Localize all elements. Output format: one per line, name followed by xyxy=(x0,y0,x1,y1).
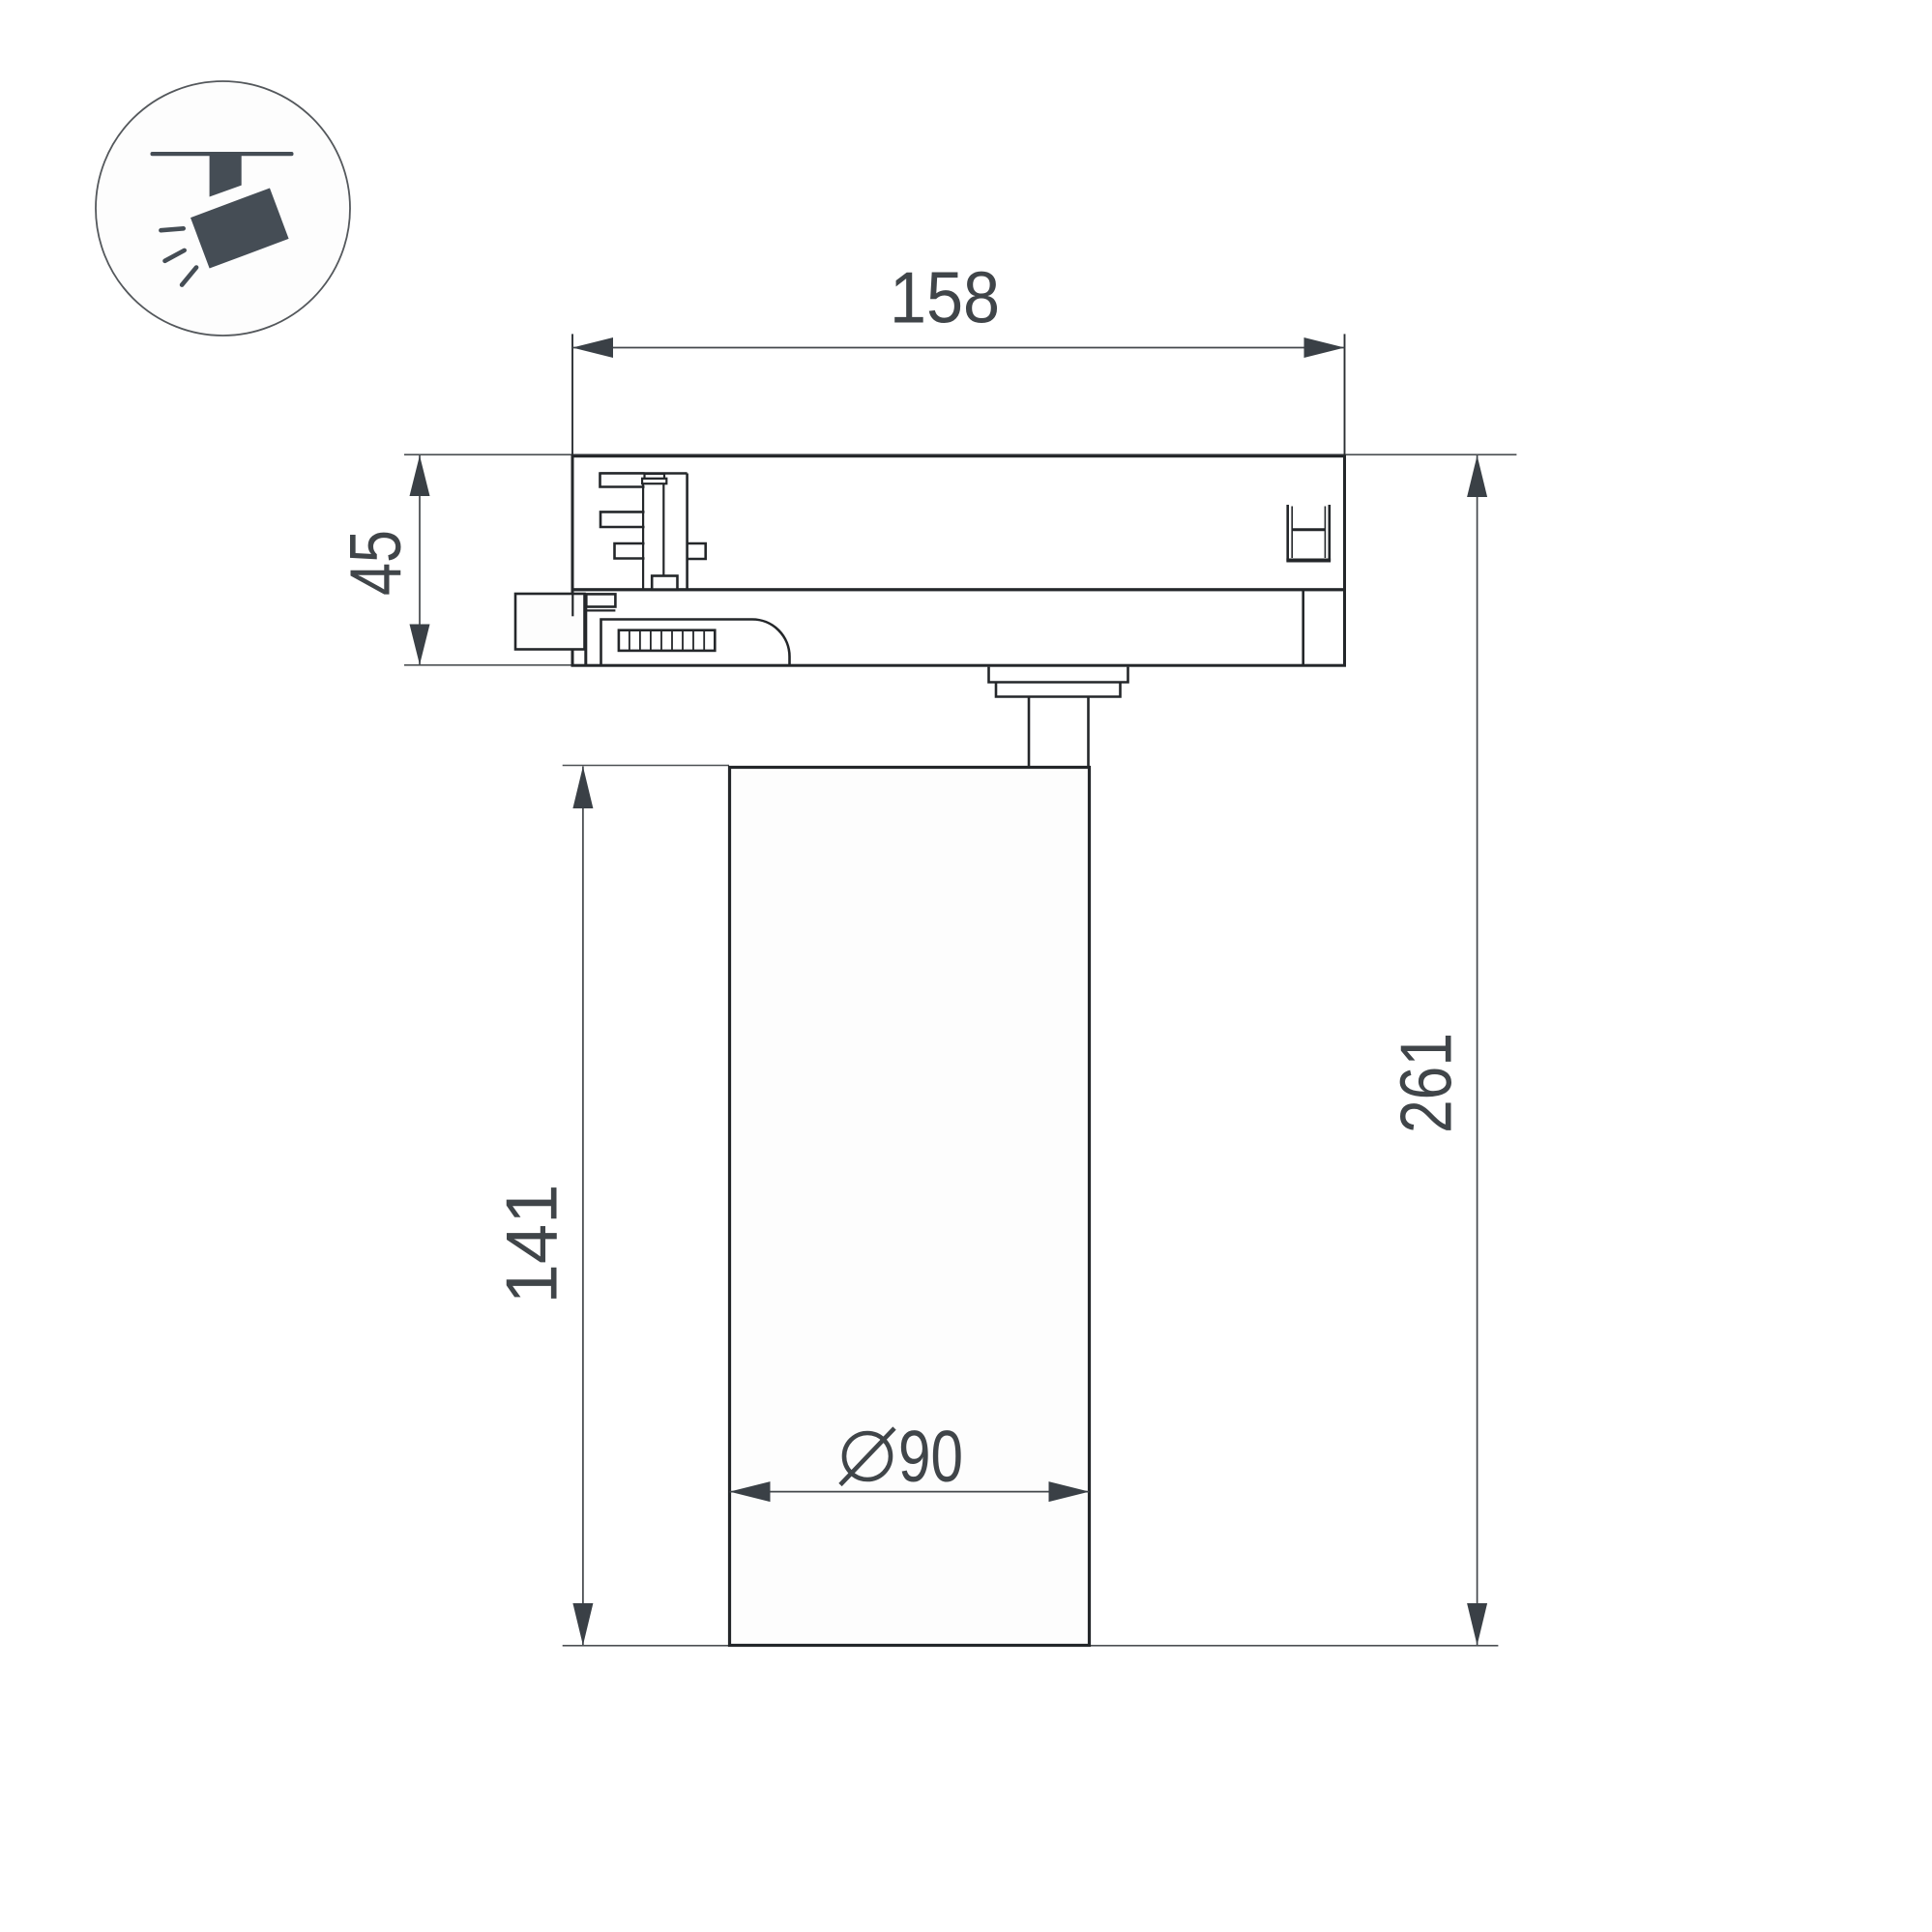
svg-text:158: 158 xyxy=(890,257,1000,338)
svg-text:141: 141 xyxy=(491,1185,572,1304)
svg-text:90: 90 xyxy=(898,1416,963,1497)
svg-text:45: 45 xyxy=(335,530,416,596)
svg-text:261: 261 xyxy=(1386,1033,1467,1133)
